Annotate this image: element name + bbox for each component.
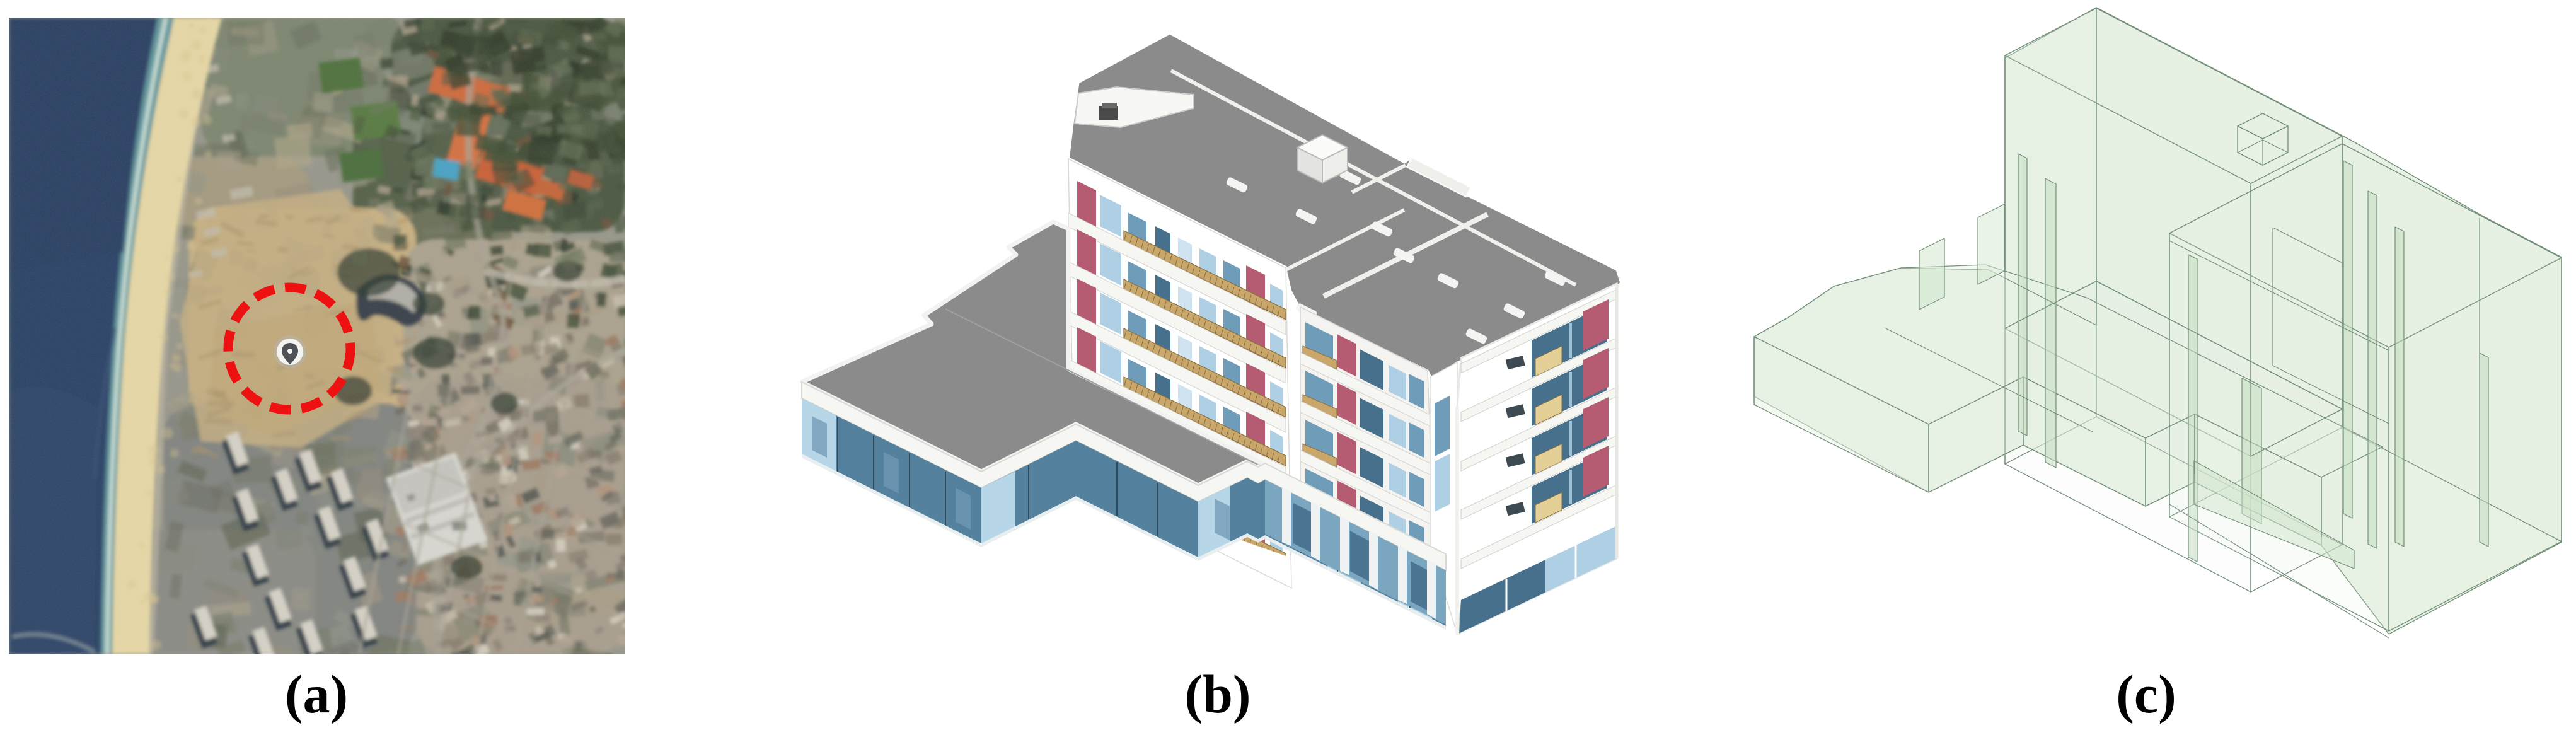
svg-text:(c): (c) xyxy=(2116,664,2176,724)
svg-text:(b): (b) xyxy=(1184,664,1250,724)
svg-text:(a): (a) xyxy=(285,664,348,724)
